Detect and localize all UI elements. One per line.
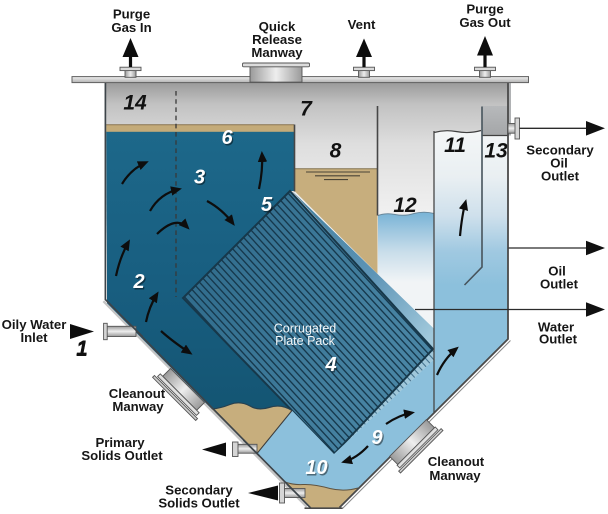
svg-text:Manway: Manway: [251, 45, 303, 60]
svg-text:Outlet: Outlet: [539, 332, 578, 347]
svg-text:4: 4: [324, 354, 336, 376]
svg-text:Solids Outlet: Solids Outlet: [81, 448, 163, 463]
svg-text:Outlet: Outlet: [540, 277, 579, 292]
svg-text:6: 6: [221, 127, 233, 149]
svg-text:12: 12: [393, 194, 417, 217]
svg-text:1: 1: [76, 338, 88, 361]
svg-text:13: 13: [484, 140, 508, 163]
svg-text:Gas Out: Gas Out: [459, 15, 511, 30]
svg-text:Gas In: Gas In: [111, 20, 151, 35]
svg-text:Vent: Vent: [348, 17, 376, 32]
svg-text:10: 10: [305, 457, 327, 479]
svg-text:Inlet: Inlet: [20, 330, 48, 345]
svg-text:Manway: Manway: [429, 468, 481, 483]
svg-text:7: 7: [300, 98, 313, 121]
svg-text:Solids Outlet: Solids Outlet: [158, 496, 240, 511]
svg-text:9: 9: [371, 427, 383, 449]
svg-text:11: 11: [444, 134, 466, 157]
svg-text:14: 14: [123, 92, 147, 115]
svg-text:Plate Pack: Plate Pack: [275, 334, 336, 348]
svg-text:2: 2: [132, 271, 144, 293]
svg-text:3: 3: [194, 167, 205, 189]
svg-text:8: 8: [330, 140, 342, 163]
svg-text:Cleanout: Cleanout: [428, 454, 485, 469]
svg-text:Manway: Manway: [112, 399, 164, 414]
svg-text:5: 5: [261, 194, 273, 216]
svg-text:Outlet: Outlet: [541, 169, 580, 184]
